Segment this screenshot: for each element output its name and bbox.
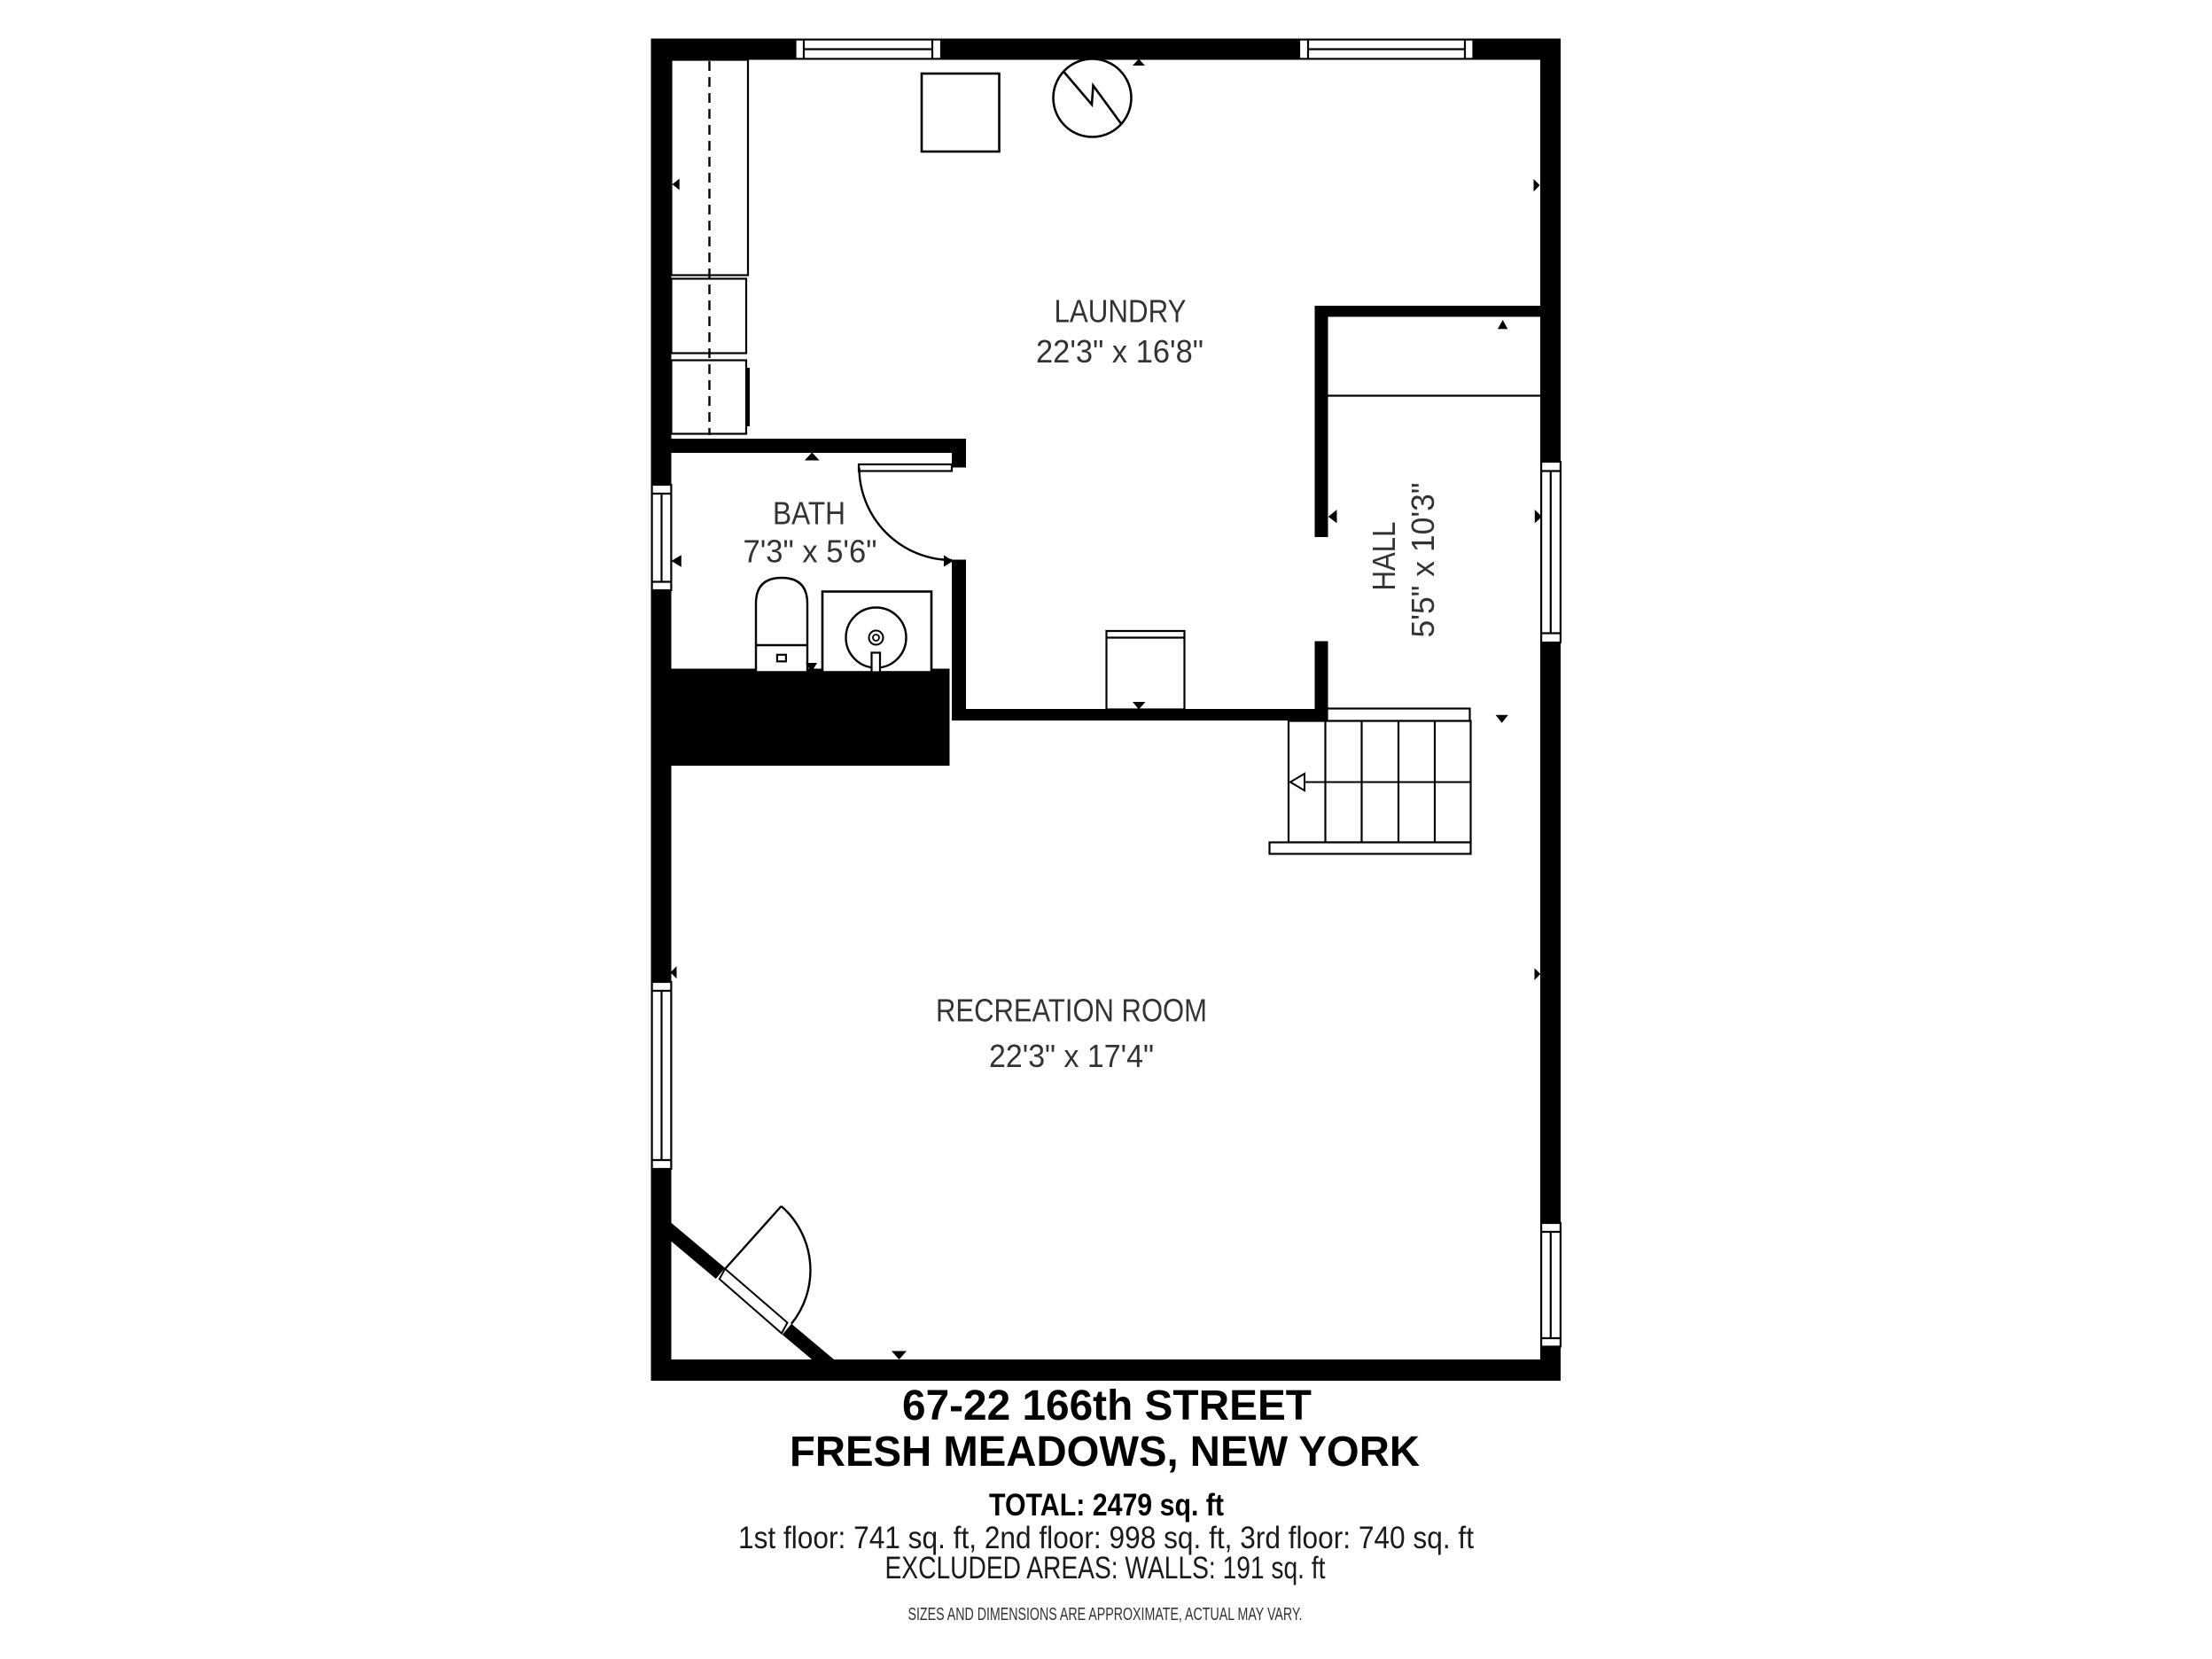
svg-text:SIZES AND DIMENSIONS ARE APPRO: SIZES AND DIMENSIONS ARE APPROXIMATE, AC… [908, 1605, 1303, 1624]
svg-text:RECREATION ROOM: RECREATION ROOM [936, 992, 1207, 1028]
svg-text:EXCLUDED AREAS: WALLS: 191 sq.: EXCLUDED AREAS: WALLS: 191 sq. ft [885, 1551, 1326, 1585]
svg-text:67-22 166th STREET: 67-22 166th STREET [902, 1382, 1312, 1429]
svg-text:FRESH MEADOWS, NEW YORK: FRESH MEADOWS, NEW YORK [790, 1429, 1420, 1476]
svg-text:22'3" x 17'4": 22'3" x 17'4" [989, 1038, 1154, 1074]
svg-text:7'3" x 5'6": 7'3" x 5'6" [744, 534, 877, 570]
svg-text:TOTAL: 2479 sq. ft: TOTAL: 2479 sq. ft [989, 1488, 1224, 1523]
svg-text:BATH: BATH [773, 495, 845, 532]
svg-text:22'3" x 16'8": 22'3" x 16'8" [1036, 333, 1203, 370]
svg-text:HALL: HALL [1366, 522, 1402, 591]
svg-text:5'5" x 10'3": 5'5" x 10'3" [1405, 483, 1441, 638]
svg-text:LAUNDRY: LAUNDRY [1055, 292, 1187, 329]
